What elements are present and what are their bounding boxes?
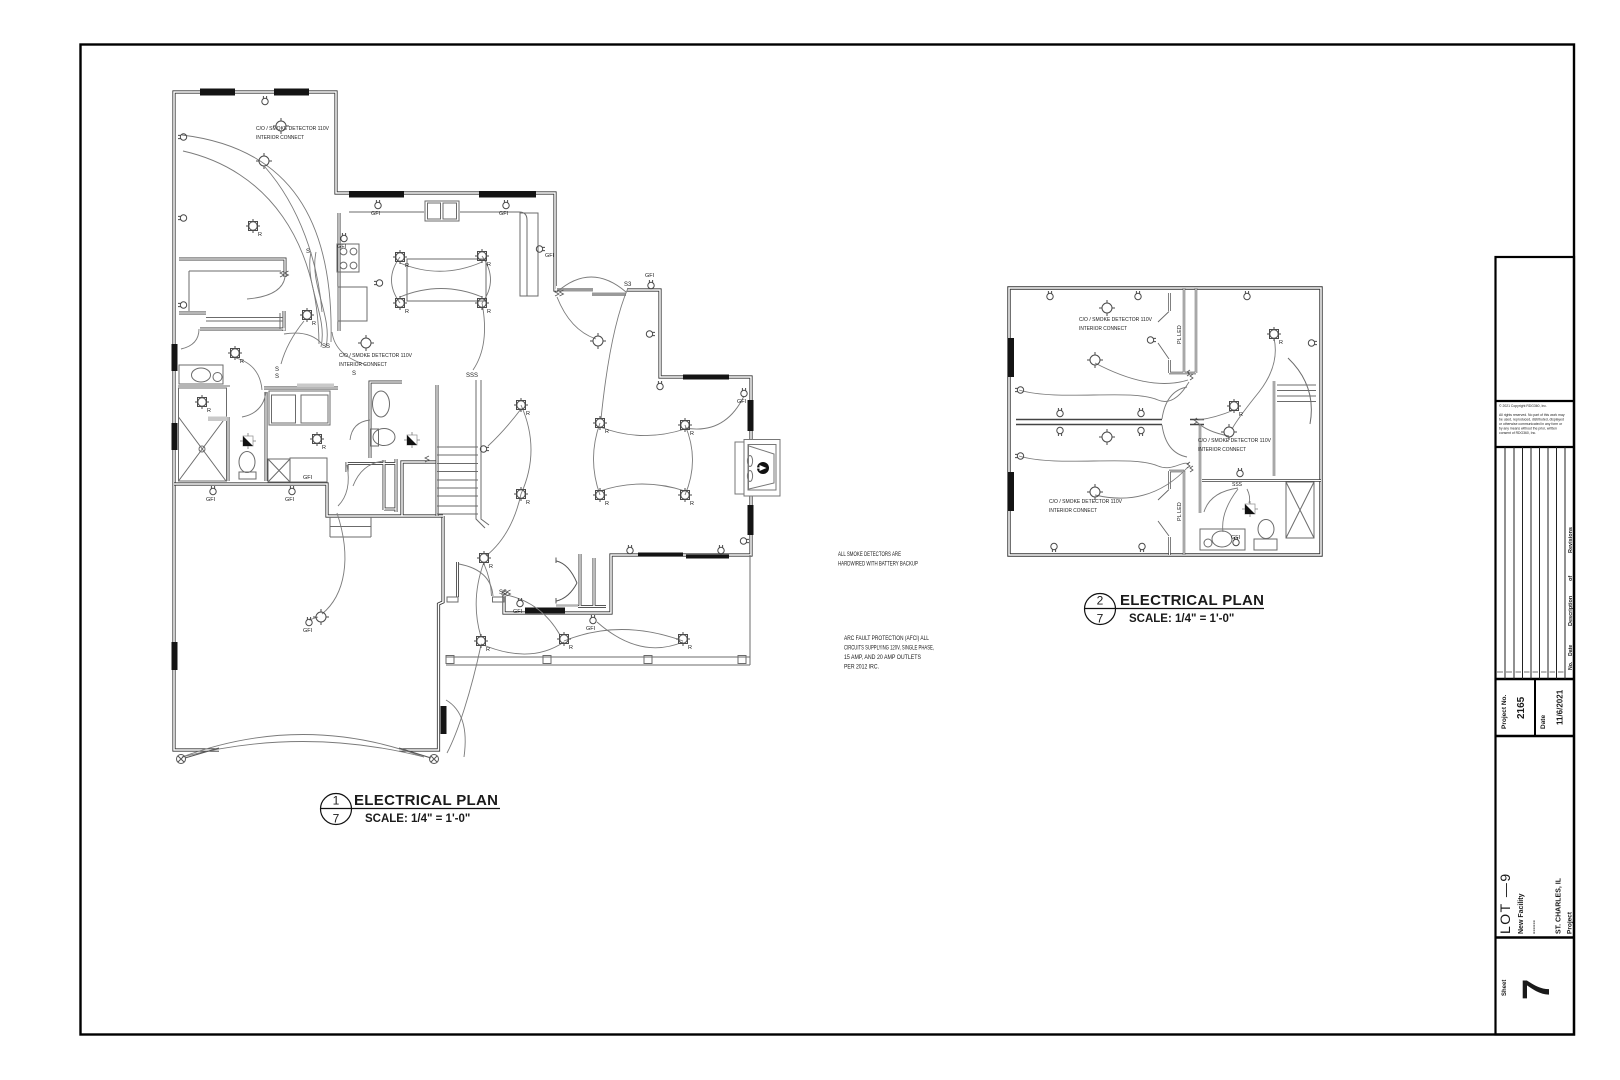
svg-text:R: R (690, 501, 694, 507)
svg-text:ST. CHARLES, IL: ST. CHARLES, IL (1556, 877, 1563, 934)
svg-text:R: R (688, 645, 692, 651)
svg-text:S3: S3 (624, 282, 632, 288)
svg-text:Revisions: Revisions (1568, 527, 1574, 553)
svg-text:of: of (1568, 576, 1574, 581)
svg-text:GFI: GFI (499, 211, 509, 217)
svg-text:or otherwise communicated in a: or otherwise communicated in any form or (1499, 422, 1563, 426)
svg-text:ELECTRICAL PLAN: ELECTRICAL PLAN (354, 792, 498, 809)
svg-text:GFI: GFI (371, 211, 381, 217)
svg-text:R: R (489, 564, 493, 570)
svg-text:C/O / SMOKE DETECTOR 110V: C/O / SMOKE DETECTOR 110V (1079, 317, 1152, 323)
svg-text:New Facility: New Facility (1518, 893, 1525, 934)
svg-text:GFI: GFI (206, 497, 216, 503)
svg-text:ELECTRICAL PLAN: ELECTRICAL PLAN (1120, 592, 1264, 609)
svg-text:2165: 2165 (1516, 696, 1527, 719)
svg-text:ARC FAULT PROTECTION (AFCI) AL: ARC FAULT PROTECTION (AFCI) ALL (844, 635, 929, 642)
svg-text:R: R (526, 500, 530, 506)
svg-text:R: R (487, 262, 491, 268)
svg-text:C/O / SMOKE DETECTOR 110V: C/O / SMOKE DETECTOR 110V (256, 126, 329, 132)
svg-text:------: ------ (1531, 919, 1538, 934)
svg-text:R: R (322, 445, 326, 451)
svg-text:R: R (312, 321, 316, 327)
svg-text:SS: SS (499, 590, 507, 596)
svg-text:No.: No. (1568, 661, 1574, 670)
svg-text:by any means without the prior: by any means without the prior, written (1499, 427, 1557, 431)
svg-text:R: R (486, 647, 490, 653)
svg-text:GFI: GFI (737, 399, 747, 405)
svg-text:Date: Date (1568, 645, 1574, 656)
svg-text:SS: SS (322, 344, 330, 350)
svg-text:R: R (1239, 412, 1243, 418)
svg-text:S: S (275, 374, 279, 380)
svg-text:GFI: GFI (1231, 535, 1241, 541)
svg-text:GFI: GFI (645, 273, 655, 279)
svg-text:Project: Project (1567, 911, 1574, 934)
svg-text:Description: Description (1568, 595, 1574, 626)
svg-text:Date: Date (1540, 715, 1547, 729)
svg-text:7: 7 (1516, 979, 1558, 1000)
svg-text:1: 1 (333, 794, 340, 808)
svg-text:PER 2012 IRC.: PER 2012 IRC. (844, 664, 879, 671)
svg-text:SCALE: 1/4" = 1'-0": SCALE: 1/4" = 1'-0" (365, 813, 470, 825)
svg-text:S: S (352, 371, 356, 377)
svg-text:PL LED: PL LED (1177, 502, 1183, 521)
svg-text:C/O / SMOKE DETECTOR 110V: C/O / SMOKE DETECTOR 110V (339, 353, 412, 359)
svg-text:R: R (1279, 340, 1283, 346)
svg-text:R: R (487, 309, 491, 315)
svg-text:SCALE: 1/4" = 1'-0": SCALE: 1/4" = 1'-0" (1129, 613, 1234, 625)
svg-text:R: R (207, 408, 211, 414)
svg-text:INTERIOR CONNECT: INTERIOR CONNECT (1198, 447, 1247, 453)
svg-text:R: R (690, 431, 694, 437)
svg-text:7: 7 (1097, 612, 1104, 626)
svg-text:R: R (569, 645, 573, 651)
svg-text:INTERIOR CONNECT: INTERIOR CONNECT (256, 135, 305, 141)
svg-text:LOT —9: LOT —9 (1497, 872, 1513, 934)
svg-text:© 2021 Copyright RDG360, Inc.: © 2021 Copyright RDG360, Inc. (1499, 404, 1547, 408)
svg-text:consent of RDG360, Inc.: consent of RDG360, Inc. (1499, 431, 1536, 435)
svg-text:S: S (306, 249, 310, 255)
svg-text:Sheet: Sheet (1502, 980, 1508, 996)
svg-text:GFI: GFI (337, 244, 347, 250)
svg-text:11/6/2021: 11/6/2021 (1556, 689, 1565, 725)
svg-text:2: 2 (1097, 594, 1104, 608)
svg-text:GFI: GFI (285, 497, 295, 503)
svg-text:R: R (240, 359, 244, 365)
svg-text:S: S (275, 367, 279, 373)
svg-text:C/O / SMOKE DETECTOR 110V: C/O / SMOKE DETECTOR 110V (1049, 499, 1122, 505)
svg-text:INTERIOR CONNECT: INTERIOR CONNECT (339, 362, 388, 368)
svg-text:ALL SMOKE DETECTORS ARE: ALL SMOKE DETECTORS ARE (838, 551, 901, 558)
svg-text:INTERIOR CONNECT: INTERIOR CONNECT (1049, 508, 1098, 514)
svg-text:SSS: SSS (1232, 482, 1243, 488)
svg-text:GFI: GFI (545, 253, 555, 259)
svg-text:be used, reproduced, distribut: be used, reproduced, distributed, displa… (1499, 418, 1564, 422)
svg-text:R: R (258, 232, 262, 238)
svg-text:SSS: SSS (466, 373, 478, 379)
svg-text:7: 7 (333, 812, 340, 826)
svg-text:15 AMP, AND 20 AMP OUTLETS: 15 AMP, AND 20 AMP OUTLETS (844, 654, 921, 661)
svg-text:PL LED: PL LED (1177, 325, 1183, 344)
svg-text:GFI: GFI (586, 626, 596, 632)
svg-text:R: R (605, 501, 609, 507)
svg-text:C/O / SMOKE DETECTOR 110V: C/O / SMOKE DETECTOR 110V (1198, 438, 1271, 444)
svg-text:GFI: GFI (513, 609, 523, 615)
svg-text:R: R (405, 309, 409, 315)
svg-text:All rights reserved. No part o: All rights reserved. No part of this wor… (1499, 413, 1565, 417)
svg-text:INTERIOR CONNECT: INTERIOR CONNECT (1079, 326, 1128, 332)
svg-text:HARDWIRED WITH BATTERY BACKUP: HARDWIRED WITH BATTERY BACKUP (838, 561, 918, 568)
svg-text:Project No.: Project No. (1501, 694, 1508, 729)
svg-text:R: R (405, 263, 409, 269)
svg-text:CIRCUITS SUPPLYING 120V, SINGL: CIRCUITS SUPPLYING 120V, SINGLE PHASE, (844, 645, 934, 652)
svg-text:R: R (526, 411, 530, 417)
svg-text:GFI: GFI (303, 475, 313, 481)
svg-text:GFI: GFI (303, 628, 313, 634)
svg-text:R: R (605, 429, 609, 435)
